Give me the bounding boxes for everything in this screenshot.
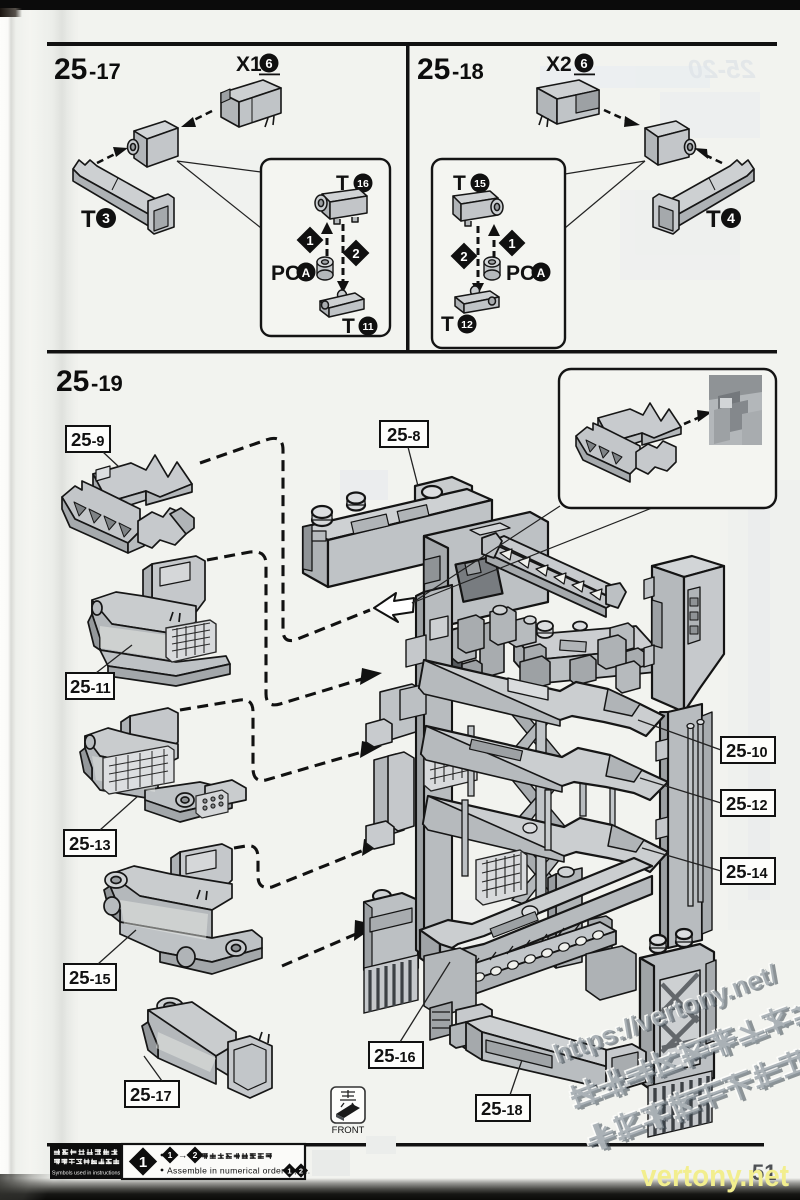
svg-text:Symbols used in instructions: Symbols used in instructions <box>52 1171 121 1177</box>
svg-text:T: T <box>342 315 355 338</box>
svg-text:A: A <box>302 266 311 280</box>
svg-text:12: 12 <box>461 319 473 331</box>
svg-text:1: 1 <box>168 1150 173 1160</box>
svg-text:T: T <box>453 172 466 195</box>
svg-text:25: 25 <box>54 53 87 86</box>
svg-text:2: 2 <box>193 1150 198 1160</box>
svg-text:25: 25 <box>56 365 89 398</box>
svg-text:-17: -17 <box>89 59 121 84</box>
svg-text:2: 2 <box>352 246 359 261</box>
svg-text:16: 16 <box>357 178 369 190</box>
svg-text:4: 4 <box>727 210 735 226</box>
svg-text:2: 2 <box>299 1167 303 1176</box>
svg-text:PC: PC <box>506 262 535 285</box>
svg-text:1: 1 <box>508 236 515 251</box>
svg-text:T: T <box>706 206 721 233</box>
svg-text:PC: PC <box>271 262 300 285</box>
svg-text:11: 11 <box>362 321 373 333</box>
svg-text:Assemble in numerical order: Assemble in numerical order <box>167 1166 284 1176</box>
svg-text:1: 1 <box>287 1167 291 1176</box>
svg-text:25: 25 <box>417 53 450 86</box>
svg-text:vertony.net: vertony.net <box>641 1158 789 1193</box>
svg-text:25-20: 25-20 <box>688 54 756 84</box>
svg-text:FRONT: FRONT <box>332 1125 365 1136</box>
svg-text:→: → <box>178 1151 188 1162</box>
svg-text:-18: -18 <box>452 59 484 84</box>
svg-text:15: 15 <box>474 178 486 190</box>
svg-text:-19: -19 <box>91 371 123 396</box>
svg-text:2: 2 <box>460 249 467 264</box>
svg-text:1: 1 <box>139 1154 147 1171</box>
svg-text:6: 6 <box>580 56 587 71</box>
svg-text:..: .. <box>306 1167 311 1176</box>
svg-text:X2: X2 <box>546 53 572 76</box>
svg-text:3: 3 <box>102 210 110 226</box>
svg-text:X1: X1 <box>236 53 262 76</box>
svg-text:6: 6 <box>265 56 272 71</box>
svg-text:A: A <box>537 266 546 280</box>
svg-text:T: T <box>441 313 454 336</box>
svg-text:1: 1 <box>306 233 313 248</box>
svg-text:T: T <box>81 206 96 233</box>
